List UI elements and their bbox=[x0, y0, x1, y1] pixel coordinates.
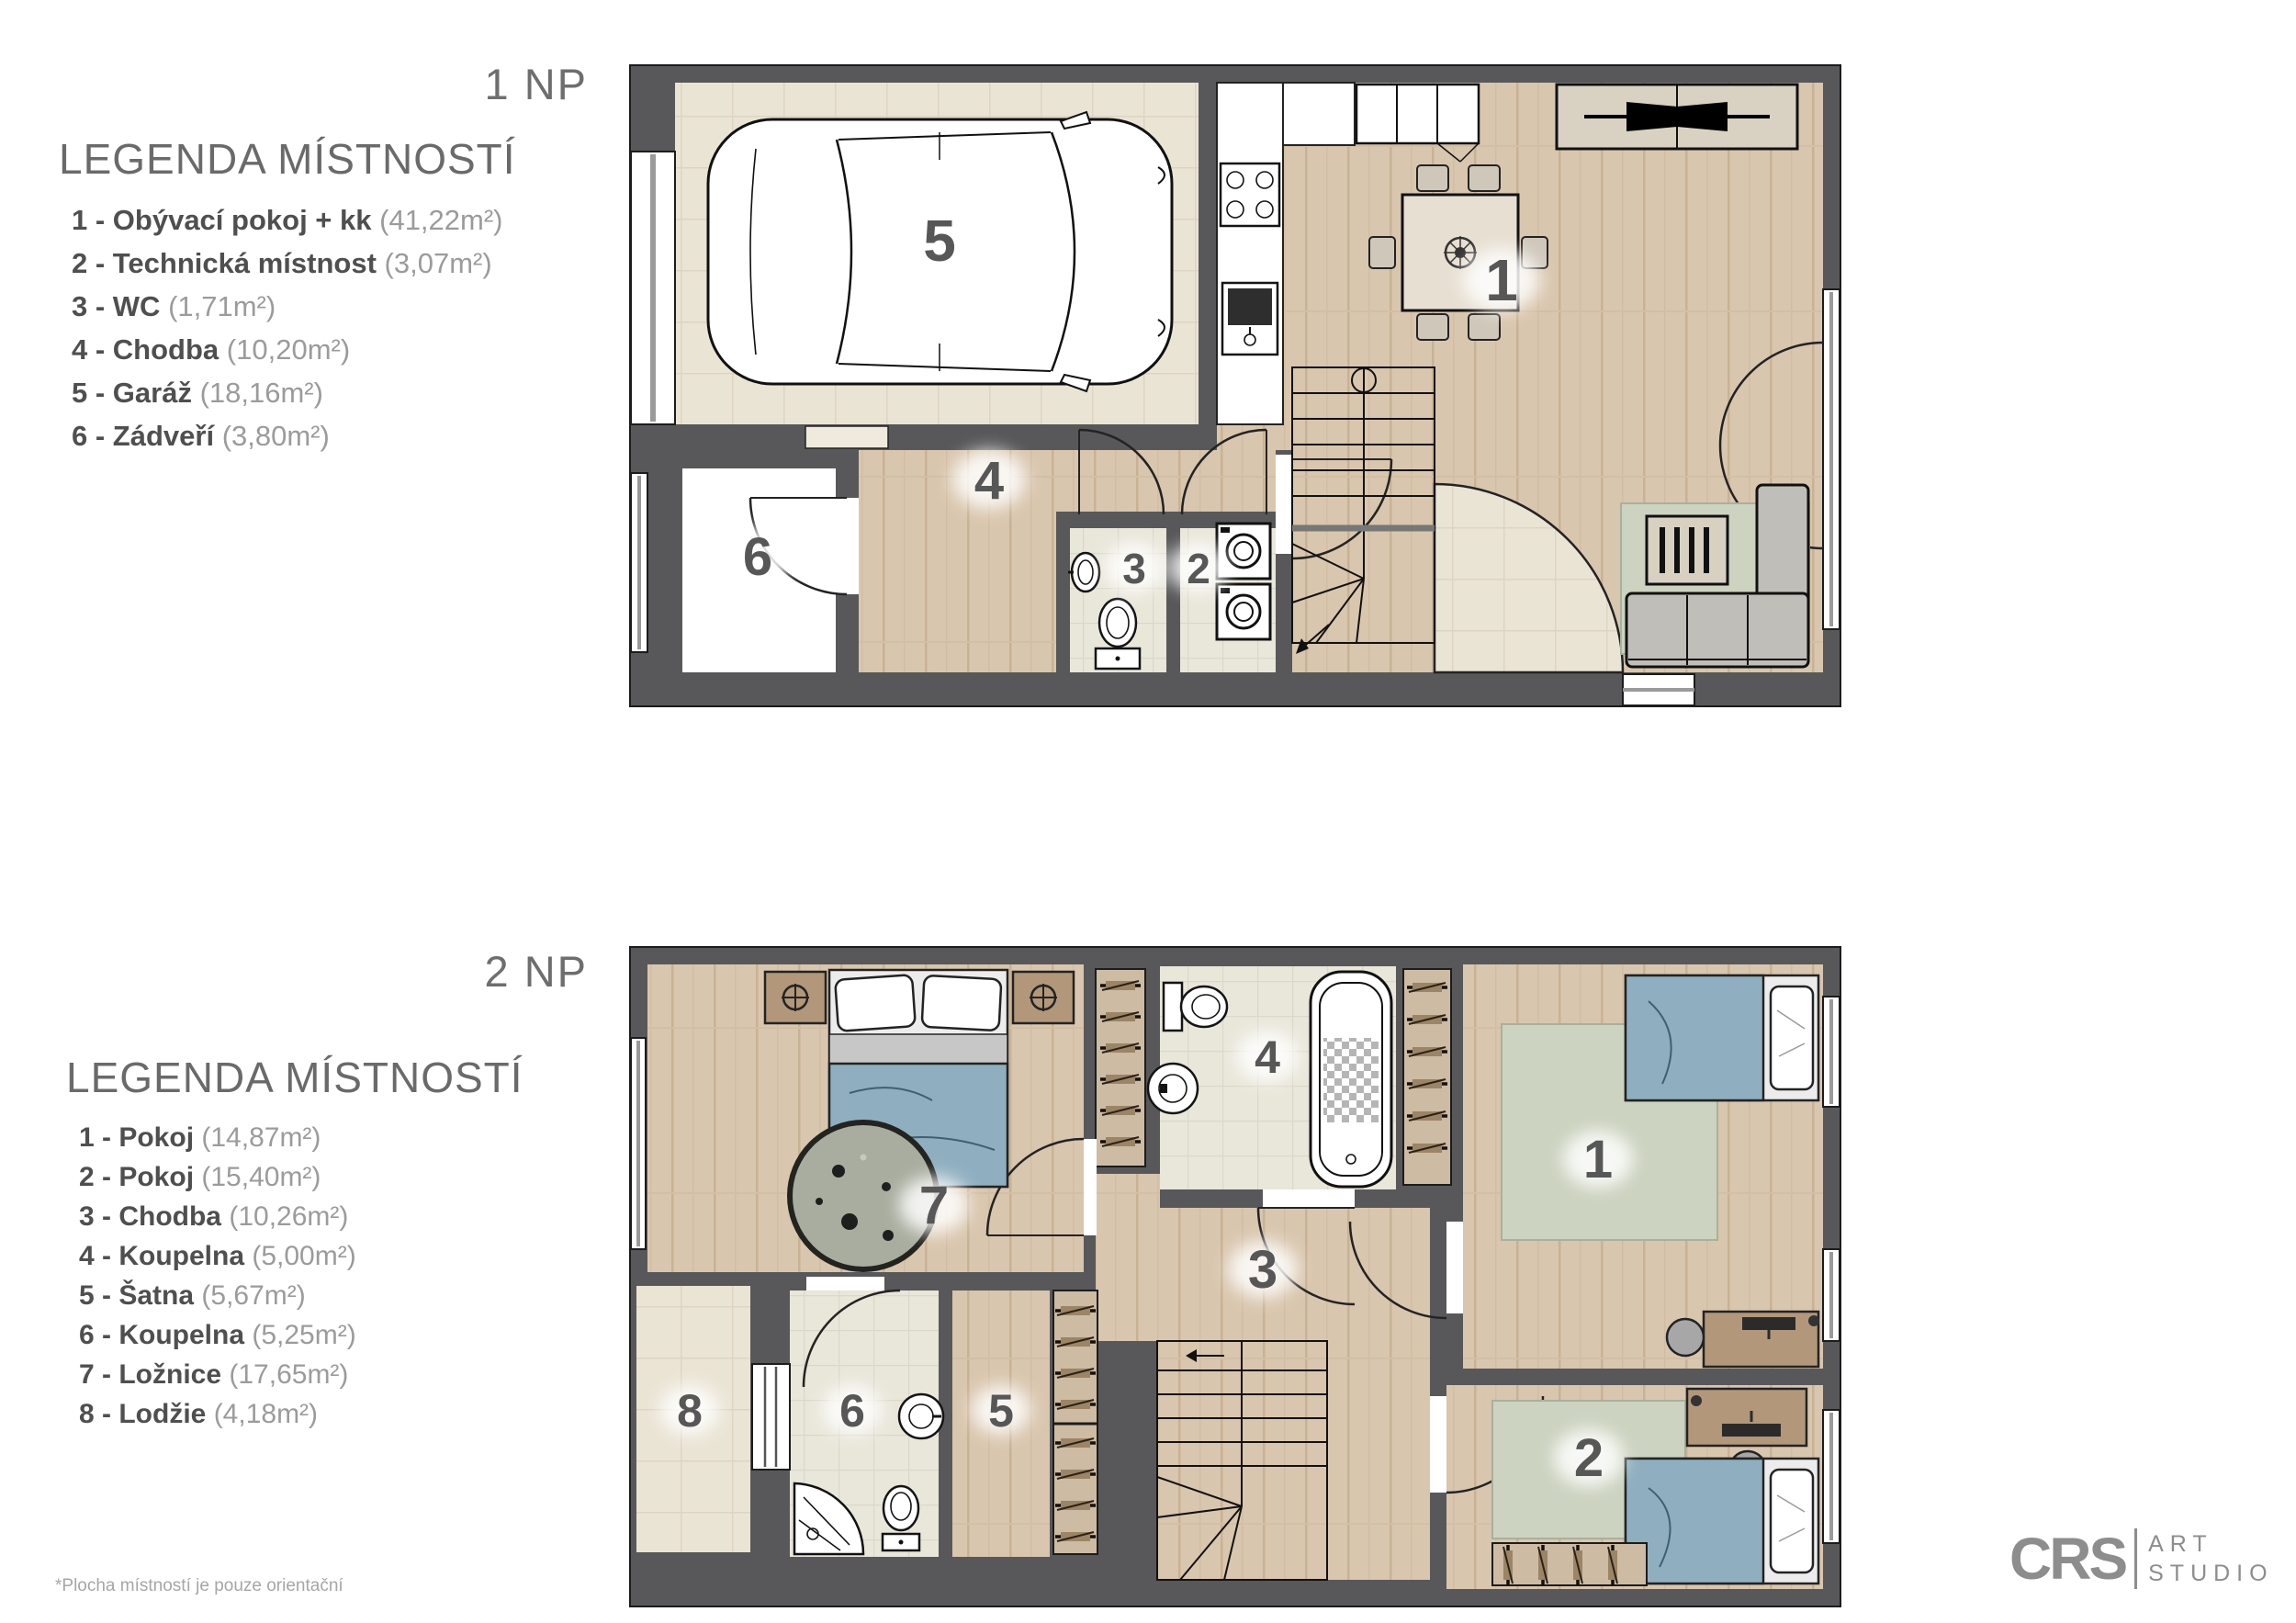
nightstand bbox=[1013, 972, 1074, 1023]
logo-mark: CRS bbox=[2009, 1529, 2125, 1588]
legend-item-area: (3,80m²) bbox=[222, 420, 330, 452]
legend-item: 4 - Koupelna (5,00m²) bbox=[66, 1241, 617, 1280]
window bbox=[631, 473, 647, 652]
room-label-2: 2 bbox=[1169, 543, 1228, 592]
legend-item-label: 3 - WC bbox=[72, 290, 160, 322]
legend-item-label: 1 - Obývací pokoj + kk bbox=[72, 204, 372, 236]
legend-item-area: (41,22m²) bbox=[379, 204, 502, 236]
legend-item-area: (5,25m²) bbox=[252, 1320, 355, 1350]
floor2-title: 2 NP bbox=[276, 946, 588, 997]
legend-item-area: (5,67m²) bbox=[201, 1280, 305, 1311]
nightstand bbox=[765, 972, 826, 1023]
logo-lines: ART STUDIO bbox=[2148, 1529, 2273, 1588]
legend-item-label: 3 - Chodba bbox=[79, 1201, 221, 1232]
hanger-icon bbox=[1100, 1075, 1141, 1084]
svg-text:6: 6 bbox=[743, 527, 772, 587]
legend-item: 1 - Obývací pokoj + kk (41,22m²) bbox=[59, 204, 610, 247]
legend-item: 2 - Technická místnost (3,07m²) bbox=[59, 247, 610, 290]
garage-door bbox=[631, 152, 675, 424]
legend-item-area: (1,71m²) bbox=[168, 290, 276, 322]
bed-single bbox=[1626, 975, 1818, 1100]
hanger-icon bbox=[1100, 1012, 1141, 1021]
legend-item: 7 - Ložnice (17,65m²) bbox=[66, 1359, 617, 1399]
legend-item-label: 6 - Koupelna bbox=[79, 1320, 244, 1350]
legend-item-area: (18,16m²) bbox=[200, 377, 323, 409]
hanger-icon bbox=[1100, 1106, 1141, 1115]
legend-item-area: (14,87m²) bbox=[201, 1122, 321, 1153]
floorplan-2: 7 4 3 1 2 8 6 5 bbox=[629, 946, 1841, 1607]
hanger-icon bbox=[1100, 1137, 1141, 1146]
hanger-icon bbox=[1055, 1369, 1096, 1378]
logo-line-studio: STUDIO bbox=[2148, 1559, 2273, 1588]
svg-text:7: 7 bbox=[919, 1176, 949, 1235]
footnote: *Plocha místností je pouze orientační bbox=[55, 1576, 343, 1596]
logo-divider bbox=[2134, 1528, 2137, 1589]
legend-item: 1 - Pokoj (14,87m²) bbox=[66, 1122, 617, 1162]
hanger-icon bbox=[1055, 1306, 1096, 1315]
hanger-icon bbox=[1503, 1545, 1513, 1585]
hanger-icon bbox=[1407, 1047, 1447, 1056]
washbasin-icon bbox=[1148, 1064, 1198, 1113]
dryer-icon bbox=[1217, 584, 1270, 639]
legend-item: 5 - Garáž (18,16m²) bbox=[59, 377, 610, 420]
legend-item-label: 7 - Ložnice bbox=[79, 1359, 221, 1390]
svg-text:3: 3 bbox=[1122, 545, 1146, 592]
hanger-icon bbox=[1055, 1337, 1096, 1347]
legend-item: 5 - Šatna (5,67m²) bbox=[66, 1280, 617, 1320]
room-label-3: 3 bbox=[1105, 543, 1164, 592]
window bbox=[631, 1038, 646, 1249]
doorway bbox=[1263, 1189, 1355, 1208]
legend-item-area: (15,40m²) bbox=[201, 1162, 321, 1192]
hanger-icon bbox=[1407, 1111, 1447, 1121]
legend-item: 3 - WC (1,71m²) bbox=[59, 290, 610, 333]
svg-text:4: 4 bbox=[974, 451, 1004, 511]
svg-text:5: 5 bbox=[988, 1385, 1014, 1437]
doorway bbox=[1430, 1396, 1446, 1493]
toilet-icon bbox=[883, 1486, 919, 1550]
wardrobe bbox=[1492, 1543, 1647, 1585]
legend-item-label: 5 - Garáž bbox=[72, 377, 192, 409]
svg-text:4: 4 bbox=[1255, 1031, 1280, 1083]
hanger-icon bbox=[1100, 1043, 1141, 1053]
hanger-icon bbox=[1055, 1400, 1096, 1409]
hanger-icon bbox=[1407, 1079, 1447, 1088]
legend1-title: LEGENDA MÍSTNOSTÍ bbox=[59, 134, 610, 184]
svg-text:2: 2 bbox=[1574, 1428, 1604, 1488]
legend-item-label: 4 - Koupelna bbox=[79, 1241, 244, 1271]
svg-text:1: 1 bbox=[1583, 1130, 1613, 1189]
window bbox=[1823, 289, 1840, 629]
studio-logo: CRS ART STUDIO bbox=[2009, 1528, 2274, 1589]
svg-text:2: 2 bbox=[1187, 545, 1210, 592]
sink-icon bbox=[1222, 283, 1277, 355]
legend-item: 8 - Lodžie (4,18m²) bbox=[66, 1399, 617, 1438]
legend-item: 4 - Chodba (10,20m²) bbox=[59, 333, 610, 377]
toilet-icon bbox=[1096, 599, 1140, 669]
bathtub-icon bbox=[1311, 972, 1391, 1187]
hanger-icon bbox=[1055, 1470, 1096, 1479]
legend1-items: 1 - Obývací pokoj + kk (41,22m²) 2 - Tec… bbox=[59, 204, 610, 463]
hanger-icon bbox=[1608, 1545, 1617, 1585]
floorplan-sheet: 1 NP 2 NP LEGENDA MÍSTNOSTÍ 1 - Obývací … bbox=[0, 0, 2296, 1623]
desk-chair bbox=[1667, 1319, 1704, 1356]
svg-text:5: 5 bbox=[923, 208, 956, 274]
doorway bbox=[1084, 1139, 1097, 1235]
stove-icon bbox=[1221, 163, 1279, 226]
hanger-icon bbox=[1407, 983, 1447, 992]
toilet-icon bbox=[1164, 983, 1227, 1031]
legend-item-label: 2 - Pokoj bbox=[79, 1162, 194, 1192]
legend-item-label: 5 - Šatna bbox=[79, 1280, 194, 1311]
legend-floor1: LEGENDA MÍSTNOSTÍ 1 - Obývací pokoj + kk… bbox=[59, 134, 610, 463]
legend-item: 2 - Pokoj (15,40m²) bbox=[66, 1162, 617, 1201]
hanger-icon bbox=[1538, 1545, 1548, 1585]
doorway bbox=[1276, 455, 1292, 554]
svg-text:1: 1 bbox=[1485, 247, 1518, 313]
washbasin-icon bbox=[899, 1394, 943, 1438]
legend-item-area: (3,07m²) bbox=[385, 247, 492, 279]
entry-door bbox=[1623, 674, 1694, 705]
svg-text:8: 8 bbox=[677, 1385, 703, 1437]
logo-line-art: ART bbox=[2148, 1529, 2273, 1559]
hanger-icon bbox=[1407, 1015, 1447, 1024]
garage-opening bbox=[805, 426, 888, 448]
svg-text:6: 6 bbox=[839, 1385, 865, 1437]
doorway bbox=[836, 498, 859, 594]
legend-item-area: (17,65m²) bbox=[229, 1359, 348, 1390]
window bbox=[1823, 1249, 1840, 1341]
hanger-icon bbox=[1407, 1144, 1447, 1153]
window bbox=[1823, 997, 1840, 1107]
legend-item-label: 2 - Technická místnost bbox=[72, 247, 377, 279]
coffee-table bbox=[1647, 516, 1728, 584]
legend2-title: LEGENDA MÍSTNOSTÍ bbox=[66, 1053, 617, 1102]
doorway bbox=[1446, 1222, 1463, 1313]
floor1-title: 1 NP bbox=[276, 59, 588, 109]
legend-item-area: (5,00m²) bbox=[252, 1241, 355, 1271]
loggia-window bbox=[752, 1364, 790, 1470]
legend-item-area: (4,18m²) bbox=[214, 1399, 318, 1429]
window bbox=[1823, 1410, 1840, 1543]
legend-item-label: 8 - Lodžie bbox=[79, 1399, 206, 1429]
hanger-icon bbox=[1100, 981, 1141, 990]
legend-item-label: 6 - Zádveří bbox=[72, 420, 214, 452]
legend-item-area: (10,26m²) bbox=[229, 1201, 348, 1232]
legend-item: 6 - Zádveří (3,80m²) bbox=[59, 420, 610, 463]
legend-floor2: LEGENDA MÍSTNOSTÍ 1 - Pokoj (14,87m²) 2 … bbox=[66, 1053, 617, 1438]
legend-item: 6 - Koupelna (5,25m²) bbox=[66, 1320, 617, 1359]
legend-item-label: 1 - Pokoj bbox=[79, 1122, 194, 1153]
floorplan-1: 5 6 4 3 2 1 bbox=[629, 64, 1841, 707]
legend-item-label: 4 - Chodba bbox=[72, 333, 219, 366]
hanger-icon bbox=[1055, 1532, 1096, 1541]
hanger-icon bbox=[1573, 1545, 1582, 1585]
legend-item-area: (10,20m²) bbox=[227, 333, 350, 366]
legend2-items: 1 - Pokoj (14,87m²) 2 - Pokoj (15,40m²) … bbox=[66, 1122, 617, 1438]
doorway bbox=[806, 1277, 884, 1291]
bed-single bbox=[1626, 1459, 1818, 1584]
svg-text:3: 3 bbox=[1248, 1240, 1277, 1300]
hanger-icon bbox=[1055, 1501, 1096, 1510]
hanger-icon bbox=[1055, 1438, 1096, 1448]
legend-item: 3 - Chodba (10,26m²) bbox=[66, 1201, 617, 1241]
